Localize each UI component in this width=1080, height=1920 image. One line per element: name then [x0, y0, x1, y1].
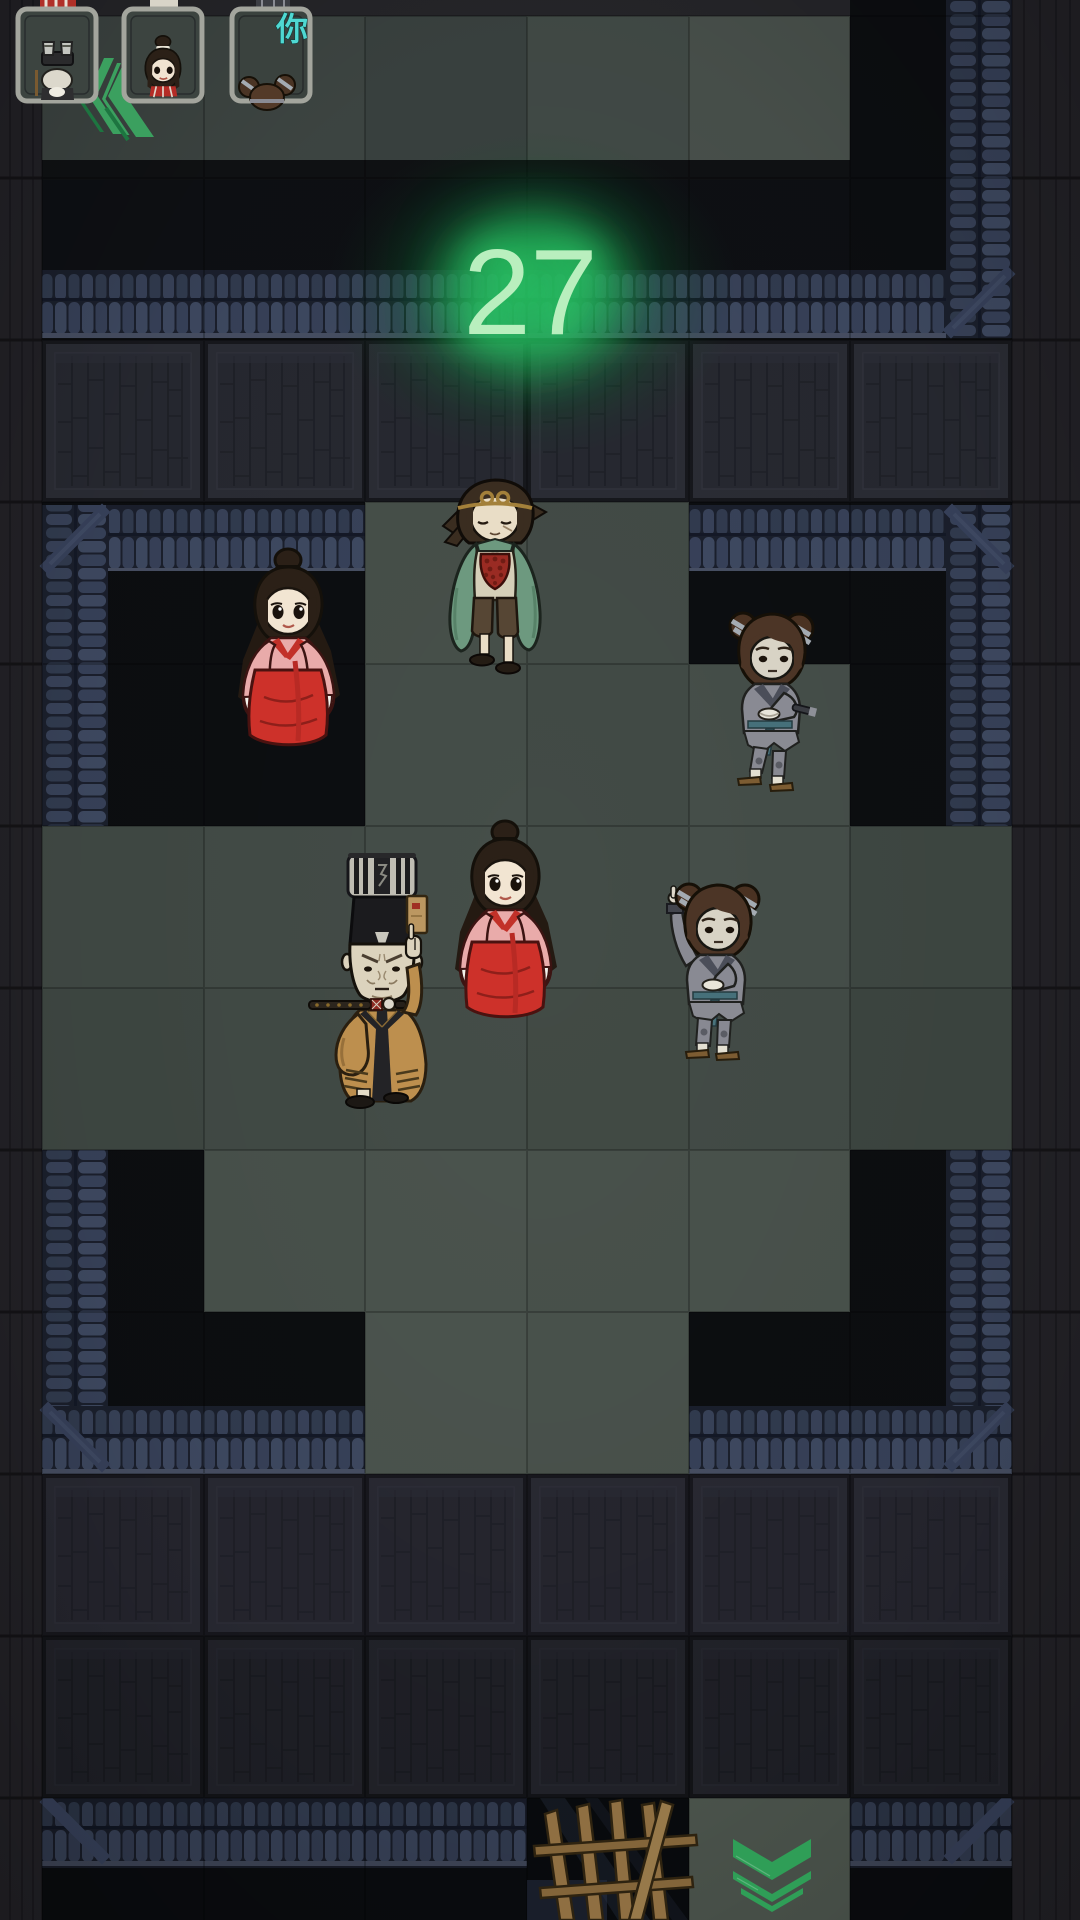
svg-text:你: 你: [275, 11, 308, 47]
svg-text:27: 27: [463, 224, 597, 360]
